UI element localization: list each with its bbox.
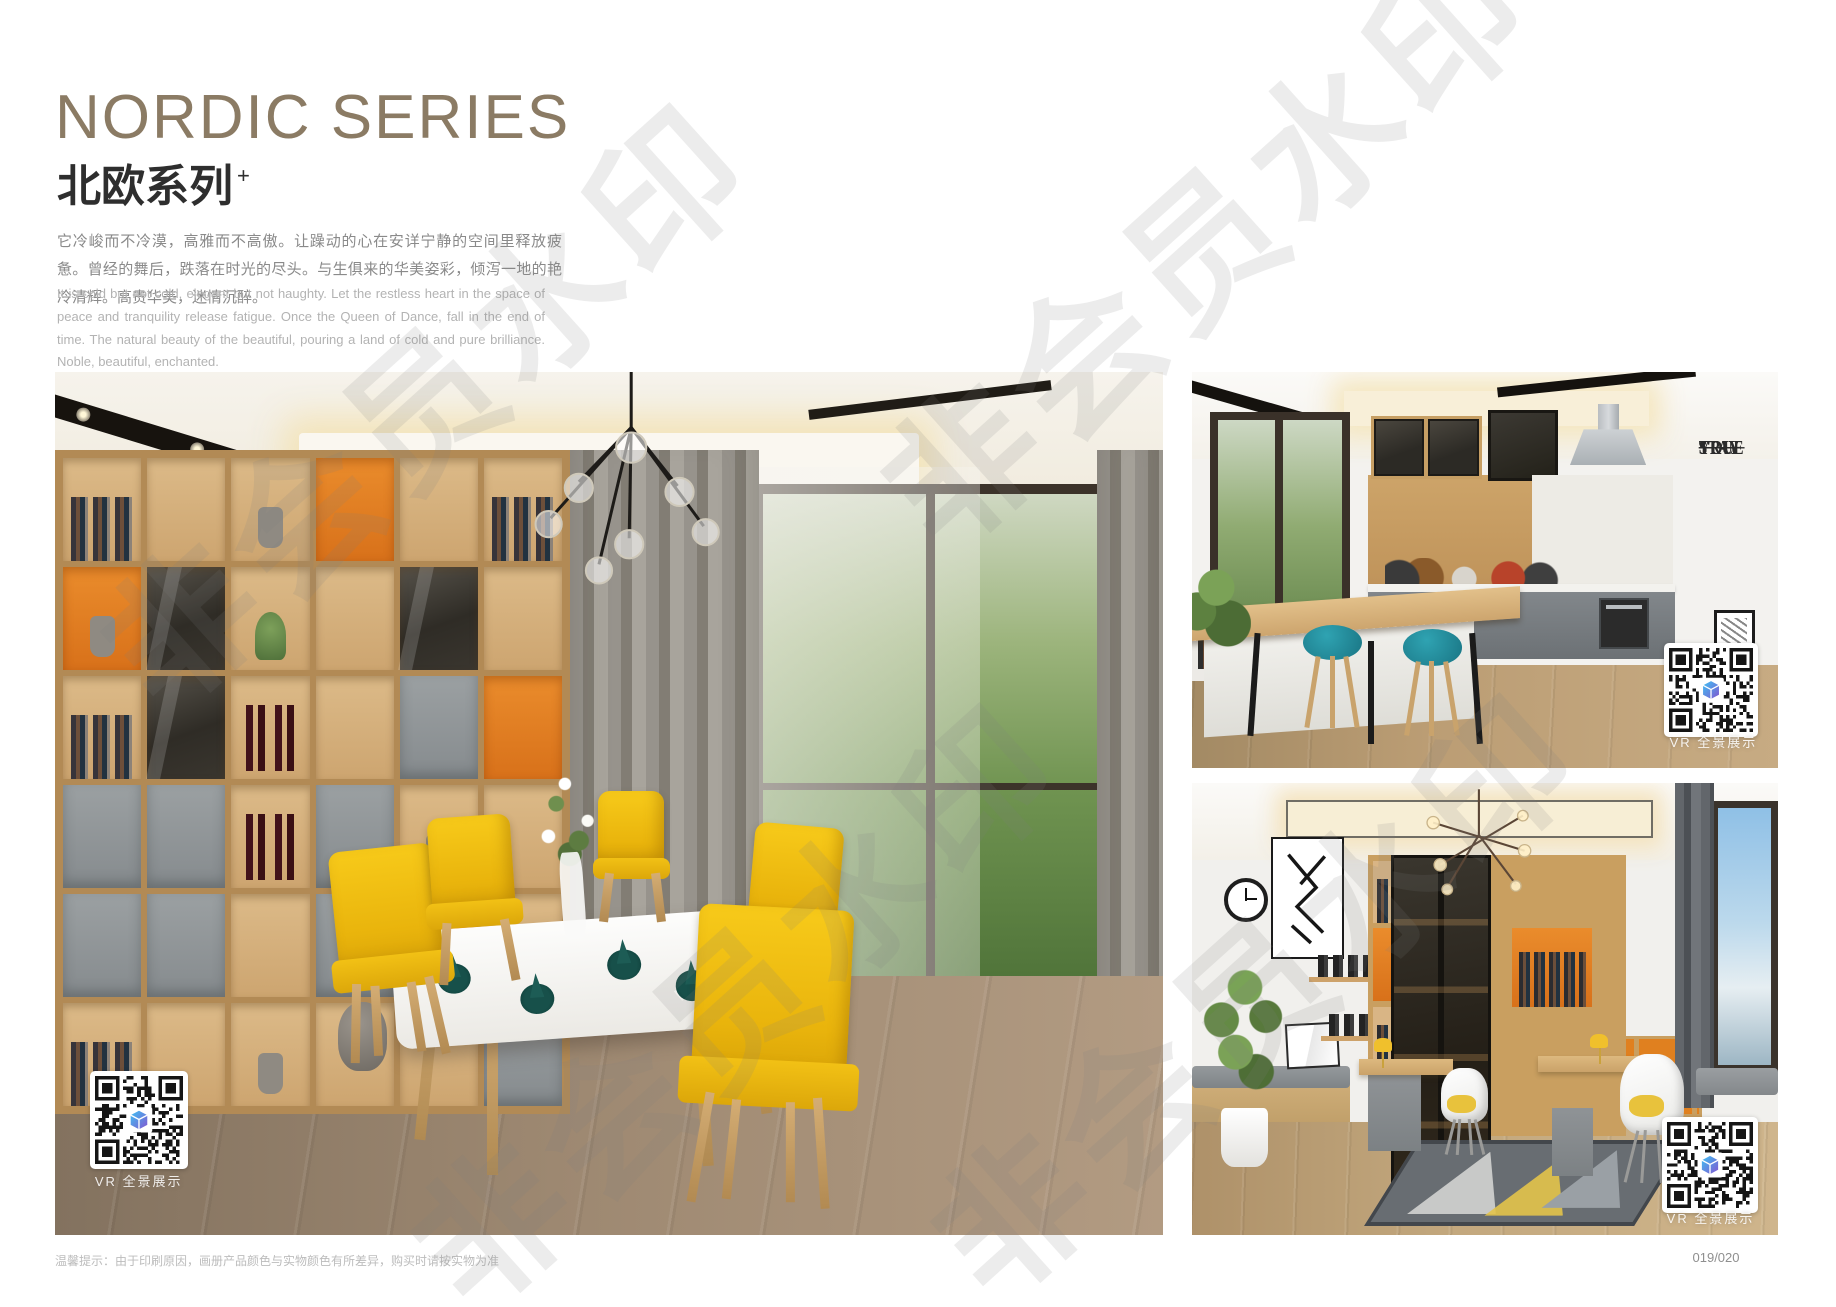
print-disclaimer: 温馨提示：由于印刷原因，画册产品颜色与实物颜色有所差异，购买时请按实物为准 [55, 1252, 499, 1269]
shelf-cell [231, 1003, 309, 1106]
shelf-cell [147, 894, 225, 997]
shelf-cell [231, 676, 309, 779]
upper-cabinet-dark [1488, 410, 1558, 481]
shelf-cell [63, 567, 141, 670]
plant-pot [1221, 1108, 1268, 1167]
photo-dining-room: VR 全景展示 [55, 372, 1163, 1235]
catalog-page: NORDIC SERIES 北欧系列+ 它冷峻而不冷漠，高雅而不高傲。让躁动的心… [0, 0, 1836, 1307]
upper-cabinet-glass [1371, 416, 1482, 479]
shelf-cell [63, 785, 141, 888]
track-light [809, 380, 1052, 420]
seat-cushion [1447, 1095, 1476, 1113]
photo-kitchen: STAY TRUE STAY YOU VR 全景展示 [1192, 372, 1778, 768]
desk-cabinet [1552, 1108, 1593, 1176]
shelf-cell [147, 567, 225, 670]
seat-cushion [1629, 1095, 1664, 1118]
vr-cube-logo-icon [1697, 1152, 1722, 1177]
qr-code [1662, 1117, 1758, 1213]
chandelier-icon [465, 372, 797, 596]
counter-items [1385, 558, 1561, 586]
vr-cube-logo-icon [127, 1107, 152, 1132]
desk [1359, 1059, 1453, 1075]
framed-abstract-art [1271, 837, 1344, 959]
intro-paragraph-en: It is cold but not cold, elegant but not… [57, 283, 545, 374]
place-setting [519, 982, 554, 1015]
bar-stool [1403, 629, 1462, 736]
built-in-oven [1599, 598, 1649, 649]
vr-cube-logo-icon [1699, 678, 1723, 702]
dining-chair [685, 903, 855, 1204]
chandelier-icon [1391, 783, 1567, 919]
shelf-cell [316, 676, 394, 779]
wall-clock [1224, 878, 1268, 922]
shelf-cell-orange [1512, 928, 1592, 1006]
shelf-cell [231, 567, 309, 670]
desk-lamp [1590, 1034, 1608, 1048]
series-title-zh: 北欧系列+ [57, 150, 250, 214]
countertop [1368, 584, 1676, 592]
shelf-cell [400, 676, 478, 779]
window-seat-cushion [1696, 1068, 1778, 1095]
qr-code [90, 1071, 188, 1169]
range-hood-chimney [1598, 404, 1619, 432]
shelf-cell [231, 458, 309, 561]
shelf-cell [63, 676, 141, 779]
shelf-cell [231, 894, 309, 997]
place-setting [606, 948, 641, 981]
dining-chair [598, 791, 664, 920]
island-leg [1368, 641, 1374, 744]
shelf-cell [63, 458, 141, 561]
dining-chair [426, 814, 520, 983]
shelf-cell [147, 785, 225, 888]
table-leg [487, 1037, 498, 1175]
series-title-en: NORDIC SERIES [55, 82, 570, 153]
vr-panorama-label: VR 全景展示 [1667, 1208, 1755, 1227]
vr-panorama-label: VR 全景展示 [1670, 732, 1758, 751]
bar-stool [1303, 625, 1362, 728]
title-plus-mark: + [237, 163, 250, 188]
shelf-cell [316, 567, 394, 670]
window [1711, 801, 1778, 1072]
shelf-cell [231, 785, 309, 888]
page-number: 019/020 [1666, 1250, 1766, 1265]
desk-cabinet [1368, 1075, 1421, 1152]
plant [1198, 955, 1292, 1118]
photo-study-room: VR 全景展示 [1192, 783, 1778, 1235]
qr-code [1664, 643, 1758, 737]
plant [1192, 546, 1251, 665]
shelf-cell [316, 458, 394, 561]
shelf-cell [147, 458, 225, 561]
curtain [1097, 450, 1163, 1054]
vr-panorama-label: VR 全景展示 [95, 1171, 183, 1190]
shelf-cell [63, 894, 141, 997]
desk-lamp [1374, 1038, 1392, 1052]
series-title-zh-text: 北欧系列 [57, 162, 233, 211]
shelf-cell [147, 676, 225, 779]
